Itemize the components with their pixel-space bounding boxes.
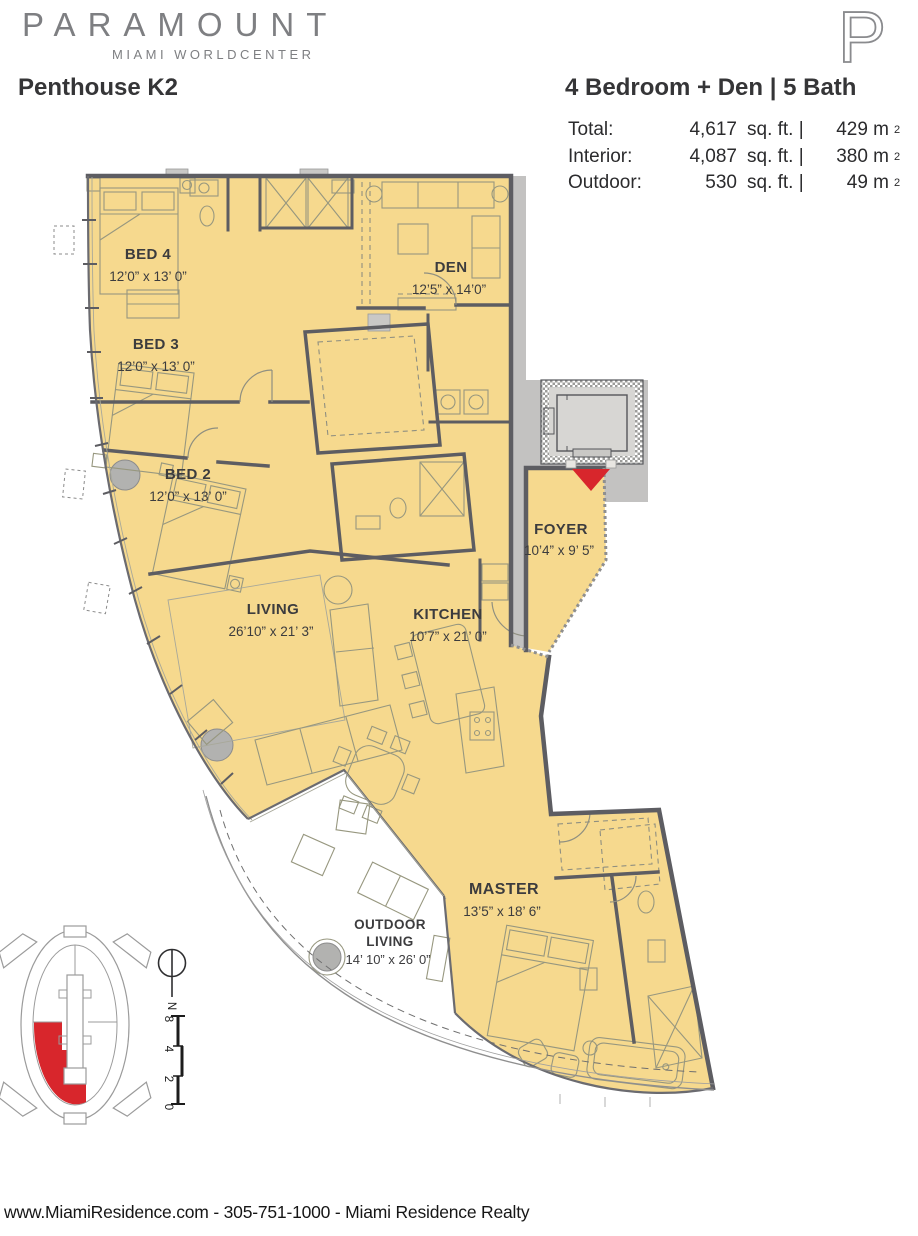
stat-label: Outdoor: — [568, 170, 665, 197]
page-title: Penthouse K2 — [18, 74, 178, 102]
stat-metric: 49 m — [815, 170, 889, 197]
room-dims-bed2: 12’0” x 13’ 0” — [149, 489, 227, 504]
room-dims-den: 12’5” x 14’0” — [412, 282, 486, 297]
svg-text:P: P — [838, 2, 886, 72]
room-label-kitchen: KITCHEN — [413, 606, 482, 623]
plan-type-heading: 4 Bedroom + Den | 5 Bath — [565, 74, 856, 102]
stat-sqft: 4,617 — [665, 117, 737, 144]
stat-metric: 380 m — [815, 144, 889, 171]
brand-wordmark: PARAMOUNT — [22, 6, 338, 44]
stat-metric-sup: 2 — [889, 117, 907, 144]
room-label-outdoor-1: OUTDOOR — [354, 917, 426, 932]
room-dims-outdoor: 14’ 10” x 26’ 0” — [345, 952, 430, 967]
stat-metric: 429 m — [815, 117, 889, 144]
footer-contact-line: www.MiamiResidence.com - 305-751-1000 - … — [4, 1202, 529, 1223]
room-label-bed3: BED 3 — [133, 336, 179, 353]
room-label-living: LIVING — [247, 601, 299, 618]
room-label-den: DEN — [435, 259, 468, 276]
room-dims-kitchen: 10’7” x 21’ 0” — [409, 629, 487, 644]
stat-unit: sq. ft. | — [737, 170, 815, 197]
stat-label: Interior: — [568, 144, 665, 171]
room-dims-living: 26’10” x 21’ 3” — [228, 624, 313, 639]
stat-sqft: 4,087 — [665, 144, 737, 171]
brand-subtitle: MIAMI WORLDCENTER — [112, 47, 315, 62]
room-label-bed2: BED 2 — [165, 466, 211, 483]
paramount-p-logo-icon: P — [830, 2, 904, 72]
room-dims-bed3: 12’0” x 13’ 0” — [117, 359, 195, 374]
room-label-foyer: FOYER — [534, 521, 588, 538]
scale-label-2: 2 — [162, 1076, 174, 1082]
north-label: N — [165, 1002, 177, 1010]
stat-unit: sq. ft. | — [737, 117, 815, 144]
room-dims-bed4: 12’0” x 13’ 0” — [109, 269, 187, 284]
stat-sqft: 530 — [665, 170, 737, 197]
key-plan — [0, 926, 156, 1124]
room-dims-foyer: 10’4” x 9’ 5” — [524, 543, 594, 558]
elevator-icon — [541, 380, 643, 468]
stat-metric-sup: 2 — [889, 144, 907, 171]
stat-metric-sup: 2 — [889, 170, 907, 197]
scale-label-8: 8 — [162, 1016, 174, 1022]
room-label-bed4: BED 4 — [125, 246, 171, 263]
scale-label-4: 4 — [162, 1046, 174, 1053]
stat-label: Total: — [568, 117, 665, 144]
room-dims-master: 13’5” x 18’ 6” — [463, 904, 541, 919]
scale-label-0: 0 — [162, 1104, 174, 1110]
north-arrow-icon: N — [159, 949, 186, 1010]
stat-unit: sq. ft. | — [737, 144, 815, 171]
room-label-master: MASTER — [469, 881, 539, 898]
scale-bar: 8 4 2 0 — [162, 1016, 185, 1110]
floorplan-page: BED 4 12’0” x 13’ 0” BED 3 12’0” x 13’ 0… — [0, 0, 918, 1236]
room-label-outdoor-2: LIVING — [366, 934, 413, 949]
area-stats-table: Total: 4,617 sq. ft. | 429 m 2 Interior:… — [568, 117, 907, 197]
